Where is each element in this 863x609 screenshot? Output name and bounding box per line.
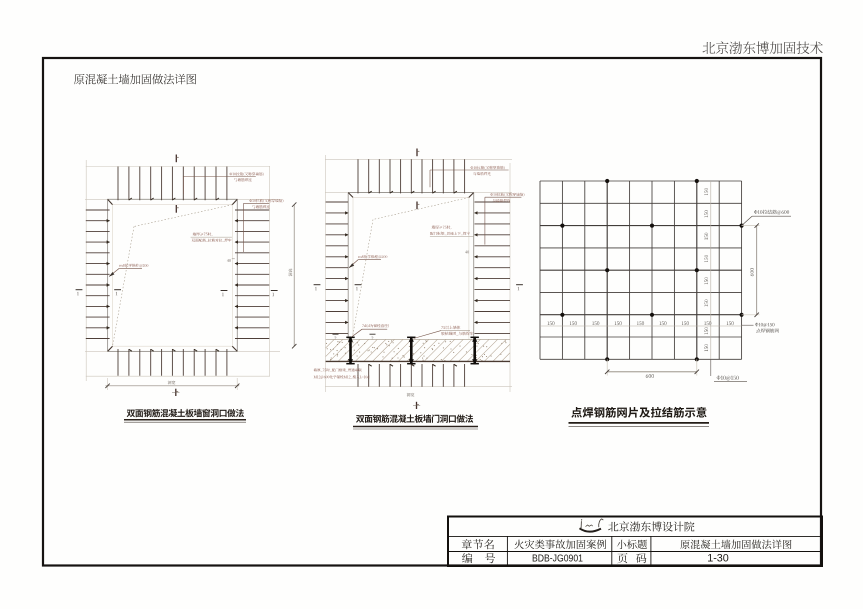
svg-text:BDB-JG0901: BDB-JG0901 [532, 554, 583, 565]
svg-text:1-30: 1-30 [707, 553, 729, 565]
